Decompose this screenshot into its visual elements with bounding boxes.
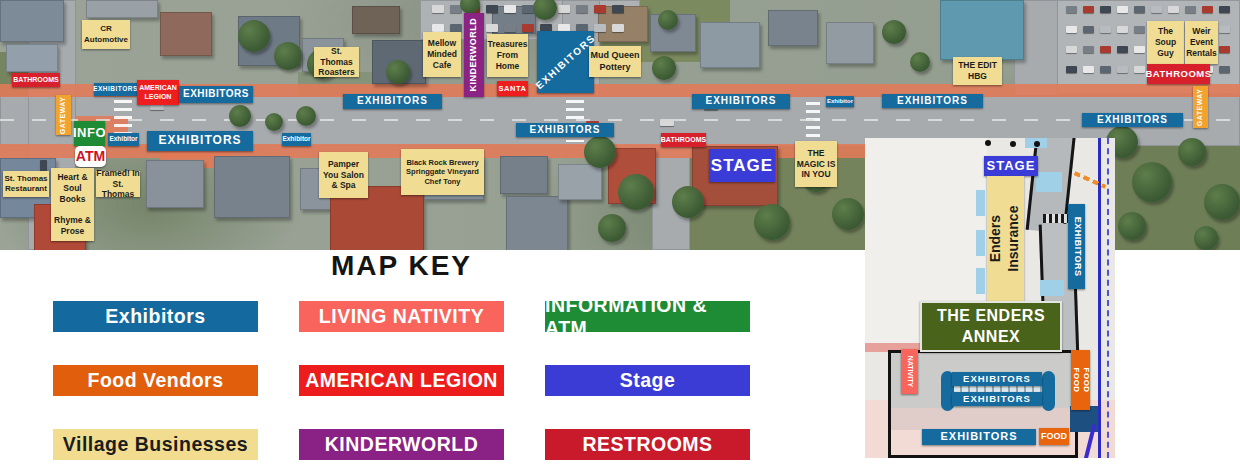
parked-car xyxy=(432,5,444,13)
parked-car xyxy=(594,24,606,32)
parked-car xyxy=(594,5,606,13)
parked-car xyxy=(1168,66,1179,73)
parked-car xyxy=(504,5,516,13)
parked-car xyxy=(504,24,516,32)
key-item-information-atm: INFORMATION & ATM xyxy=(545,301,750,332)
parked-car xyxy=(1151,66,1162,73)
parked-car xyxy=(1083,66,1094,73)
tree xyxy=(265,113,283,131)
tree xyxy=(229,105,251,127)
parked-car xyxy=(1100,46,1111,53)
tree xyxy=(658,10,678,30)
crosswalk xyxy=(114,100,132,142)
parked-car xyxy=(432,24,444,32)
building-roof xyxy=(214,156,290,218)
building-roof xyxy=(768,10,818,46)
parked-car xyxy=(40,160,47,173)
parked-car xyxy=(1100,26,1111,33)
key-item-exhibitors: Exhibitors xyxy=(53,301,258,332)
map-key-title: MAP KEY xyxy=(53,250,750,282)
tree xyxy=(1178,138,1206,166)
parked-car xyxy=(486,5,498,13)
parked-car xyxy=(558,24,570,32)
tree xyxy=(296,106,316,126)
parked-car xyxy=(1185,26,1196,33)
parked-car xyxy=(1134,6,1145,13)
plan-shape xyxy=(1036,172,1062,192)
parked-car xyxy=(586,121,599,128)
building-roof xyxy=(558,164,602,200)
plan-shape xyxy=(941,371,954,411)
plan-shape xyxy=(985,140,991,146)
parked-car xyxy=(1117,6,1128,13)
parked-car xyxy=(576,24,588,32)
parked-car xyxy=(40,182,47,195)
plan-shape xyxy=(865,138,987,352)
tree xyxy=(584,136,616,168)
parked-car xyxy=(1117,26,1128,33)
parked-car xyxy=(1151,6,1162,13)
parked-car xyxy=(1083,26,1094,33)
building-roof xyxy=(700,22,760,68)
building-roof xyxy=(424,156,484,200)
parked-car xyxy=(1134,66,1145,73)
tree xyxy=(598,214,626,242)
key-item-village-businesses: Village Businesses xyxy=(53,429,258,460)
tree xyxy=(723,149,749,175)
parked-car xyxy=(1151,26,1162,33)
building-roof xyxy=(940,0,1024,60)
parked-car xyxy=(450,24,462,32)
parked-car xyxy=(1185,6,1196,13)
plan-shape xyxy=(1042,371,1055,411)
building-roof xyxy=(34,204,86,250)
key-item-stage: Stage xyxy=(545,365,750,396)
plan-shape xyxy=(1010,141,1016,147)
parked-car xyxy=(558,5,570,13)
parked-car xyxy=(1066,6,1077,13)
parked-car xyxy=(1185,66,1196,73)
building-roof xyxy=(0,0,64,42)
parked-car xyxy=(1134,26,1145,33)
key-item-american-legion: AMERICAN LEGION xyxy=(299,365,504,396)
building-roof xyxy=(6,44,58,72)
building-roof xyxy=(500,156,548,194)
parked-car xyxy=(1202,6,1213,13)
building-roof xyxy=(826,22,874,64)
tree xyxy=(1132,162,1172,202)
plan-shape xyxy=(952,385,1042,395)
plan-shape xyxy=(976,268,985,294)
parked-car xyxy=(1185,46,1196,53)
parked-car xyxy=(540,24,552,32)
tree xyxy=(307,49,337,79)
parked-car xyxy=(1066,26,1077,33)
parked-car xyxy=(1083,6,1094,13)
key-item-restrooms: RESTROOMS xyxy=(545,429,750,460)
parked-car xyxy=(1100,66,1111,73)
tree xyxy=(910,52,930,72)
tree xyxy=(652,56,676,80)
tree xyxy=(618,174,654,210)
building-roof xyxy=(352,6,400,34)
tree xyxy=(274,42,302,70)
tree xyxy=(802,164,830,192)
road-centerline xyxy=(0,119,1240,121)
parked-car xyxy=(704,103,718,110)
annex-inset-plan xyxy=(865,138,1115,458)
parked-car xyxy=(1168,26,1179,33)
key-item-living-nativity: LIVING NATIVITY xyxy=(299,301,504,332)
key-item-food-vendors: Food Vendors xyxy=(53,365,258,396)
plan-shape xyxy=(976,190,985,216)
building-roof xyxy=(146,160,204,208)
parked-car xyxy=(1100,6,1111,13)
road xyxy=(562,0,600,96)
plan-shape xyxy=(1107,138,1109,458)
parked-car xyxy=(612,5,624,13)
tree xyxy=(672,186,704,218)
festival-walkway xyxy=(0,84,1240,97)
parked-car xyxy=(1066,66,1077,73)
parked-car xyxy=(1168,46,1179,53)
parked-car xyxy=(1066,46,1077,53)
parked-car xyxy=(1134,46,1145,53)
tree xyxy=(612,52,632,72)
tree xyxy=(1194,226,1218,250)
tree xyxy=(386,60,410,84)
map-key: ExhibitorsLIVING NATIVITYINFORMATION & A… xyxy=(53,301,750,460)
parked-car xyxy=(1117,66,1128,73)
tree xyxy=(1204,184,1240,220)
parked-car xyxy=(1202,66,1213,73)
parked-car xyxy=(1151,46,1162,53)
plan-shape xyxy=(976,230,985,256)
parked-car xyxy=(612,24,624,32)
plan-shape xyxy=(1040,280,1064,296)
parked-car xyxy=(1168,6,1179,13)
tree xyxy=(238,20,270,52)
building-roof xyxy=(160,12,212,56)
crosswalk xyxy=(566,100,584,142)
parked-car xyxy=(468,24,480,32)
parked-car xyxy=(1219,26,1230,33)
parked-car xyxy=(1219,6,1230,13)
building-roof xyxy=(506,196,568,250)
festival-map: CR AutomotiveBATHROOMSEXHIBITORSAMERICAN… xyxy=(0,0,1240,468)
parked-car xyxy=(660,119,674,126)
building-roof xyxy=(330,186,424,250)
parked-car xyxy=(522,24,534,32)
tree xyxy=(754,204,790,240)
building-roof xyxy=(86,0,158,18)
parked-car xyxy=(1117,46,1128,53)
crosswalk xyxy=(806,102,820,140)
parked-car xyxy=(1083,46,1094,53)
tree xyxy=(832,198,864,230)
parked-car xyxy=(576,5,588,13)
key-item-kinderworld: KINDERWORLD xyxy=(299,429,504,460)
parked-car xyxy=(1202,46,1213,53)
parked-car xyxy=(1219,46,1230,53)
parked-car xyxy=(1202,26,1213,33)
parked-car xyxy=(150,103,164,110)
parked-car xyxy=(486,24,498,32)
tree xyxy=(1118,212,1146,240)
parked-car xyxy=(1219,66,1230,73)
tree xyxy=(882,20,906,44)
plan-shape xyxy=(1034,141,1040,147)
plan-shape xyxy=(1043,214,1071,223)
